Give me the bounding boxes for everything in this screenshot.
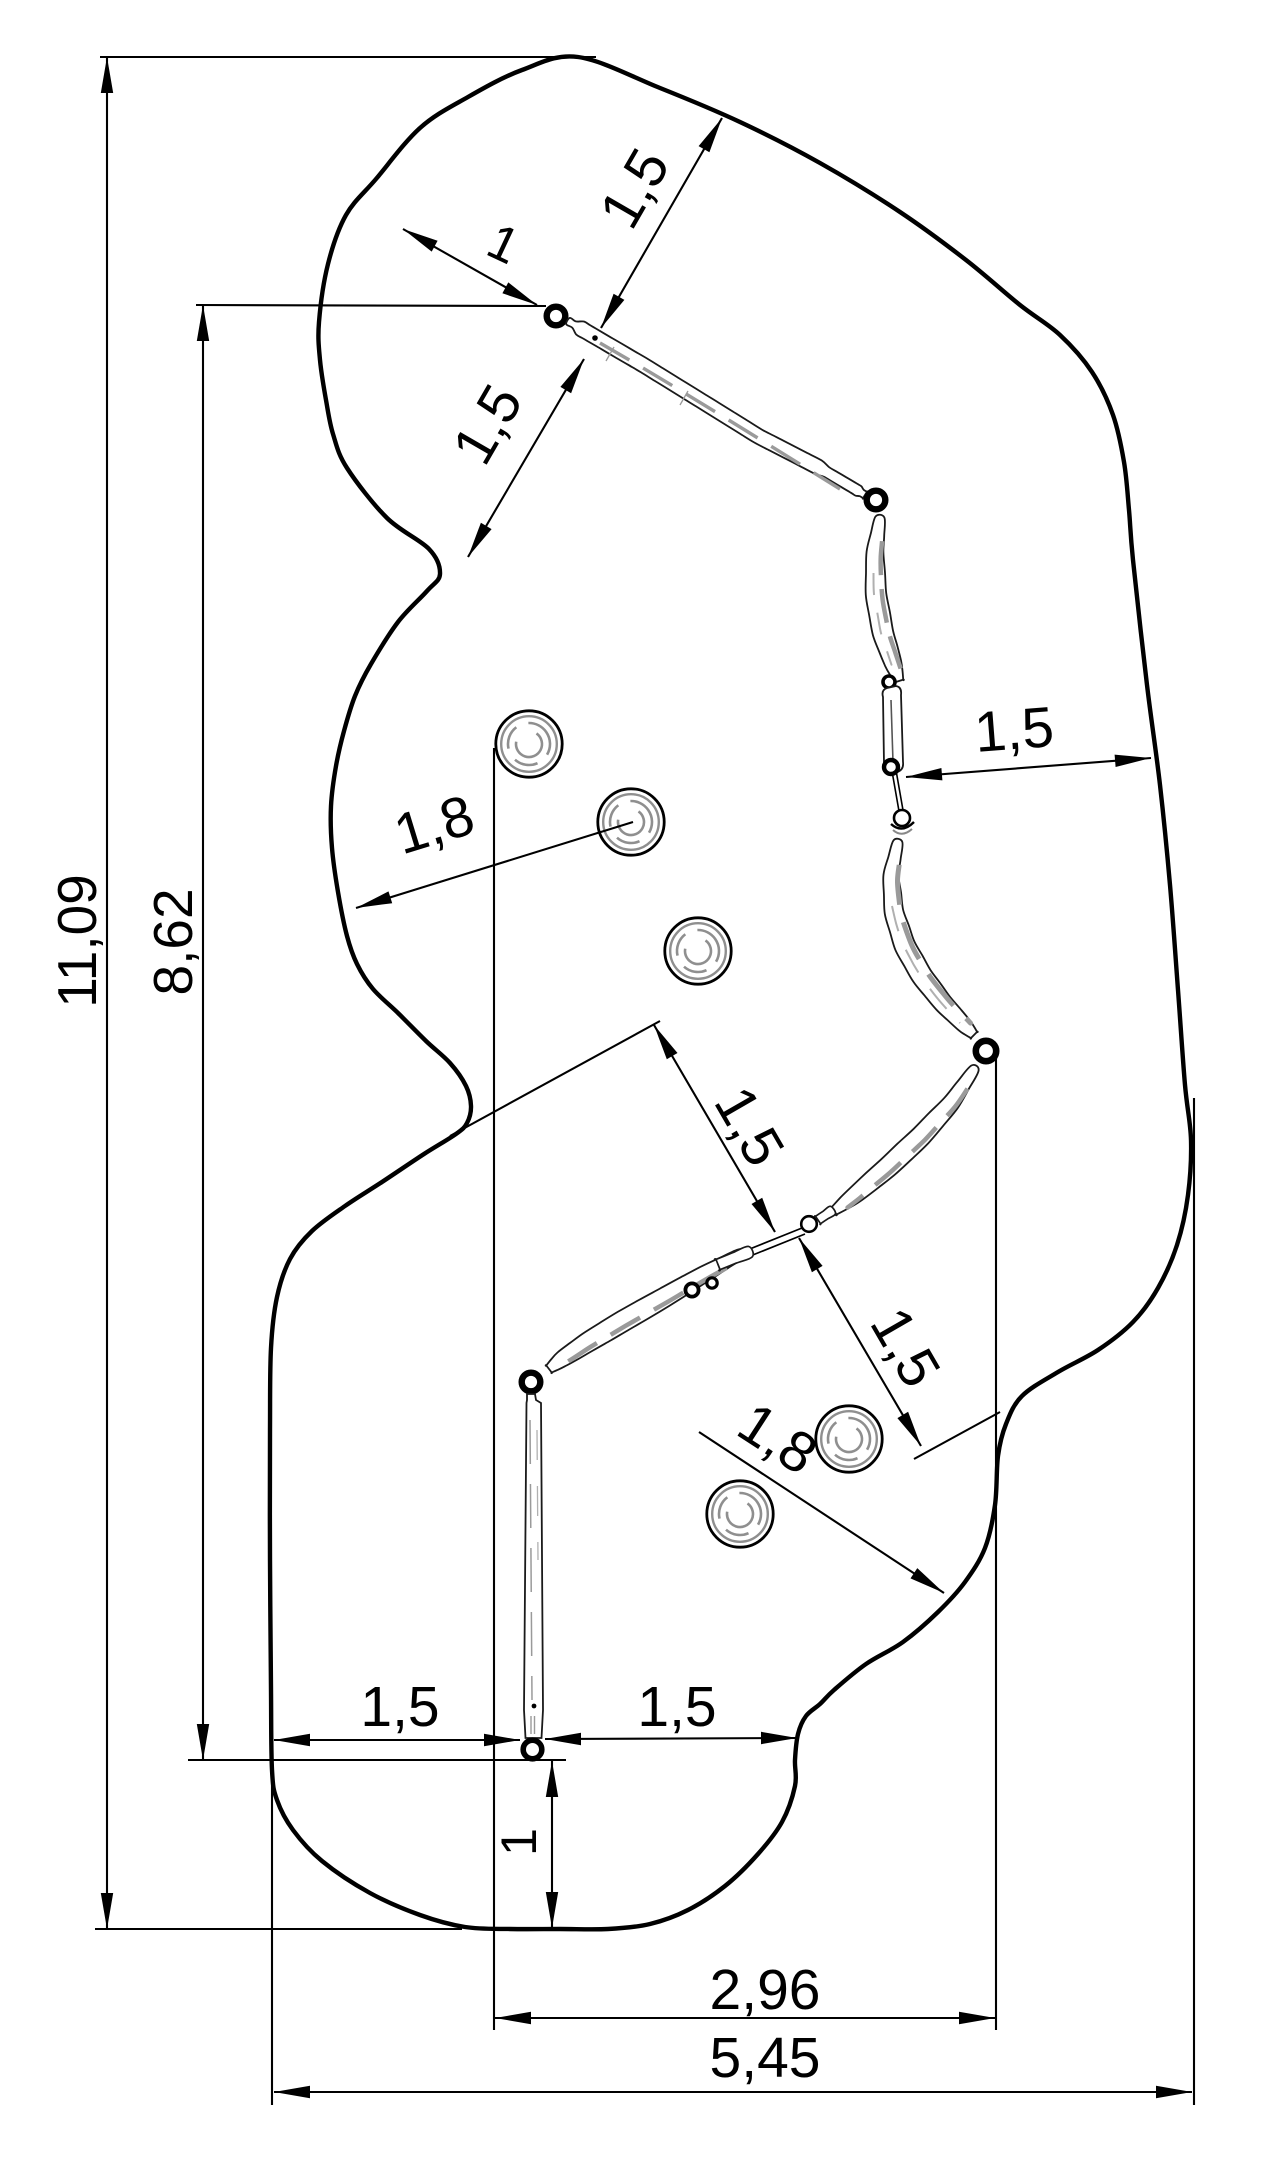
svg-text:5,45: 5,45 — [710, 2026, 821, 2090]
svg-text:1,5: 1,5 — [360, 1675, 439, 1739]
svg-text:8,62: 8,62 — [142, 888, 204, 995]
svg-text:1,5: 1,5 — [637, 1675, 716, 1739]
svg-text:1,5: 1,5 — [972, 695, 1056, 765]
svg-text:1: 1 — [491, 1828, 547, 1856]
svg-text:2,96: 2,96 — [710, 1958, 821, 2022]
svg-text:11,09: 11,09 — [46, 874, 108, 1008]
